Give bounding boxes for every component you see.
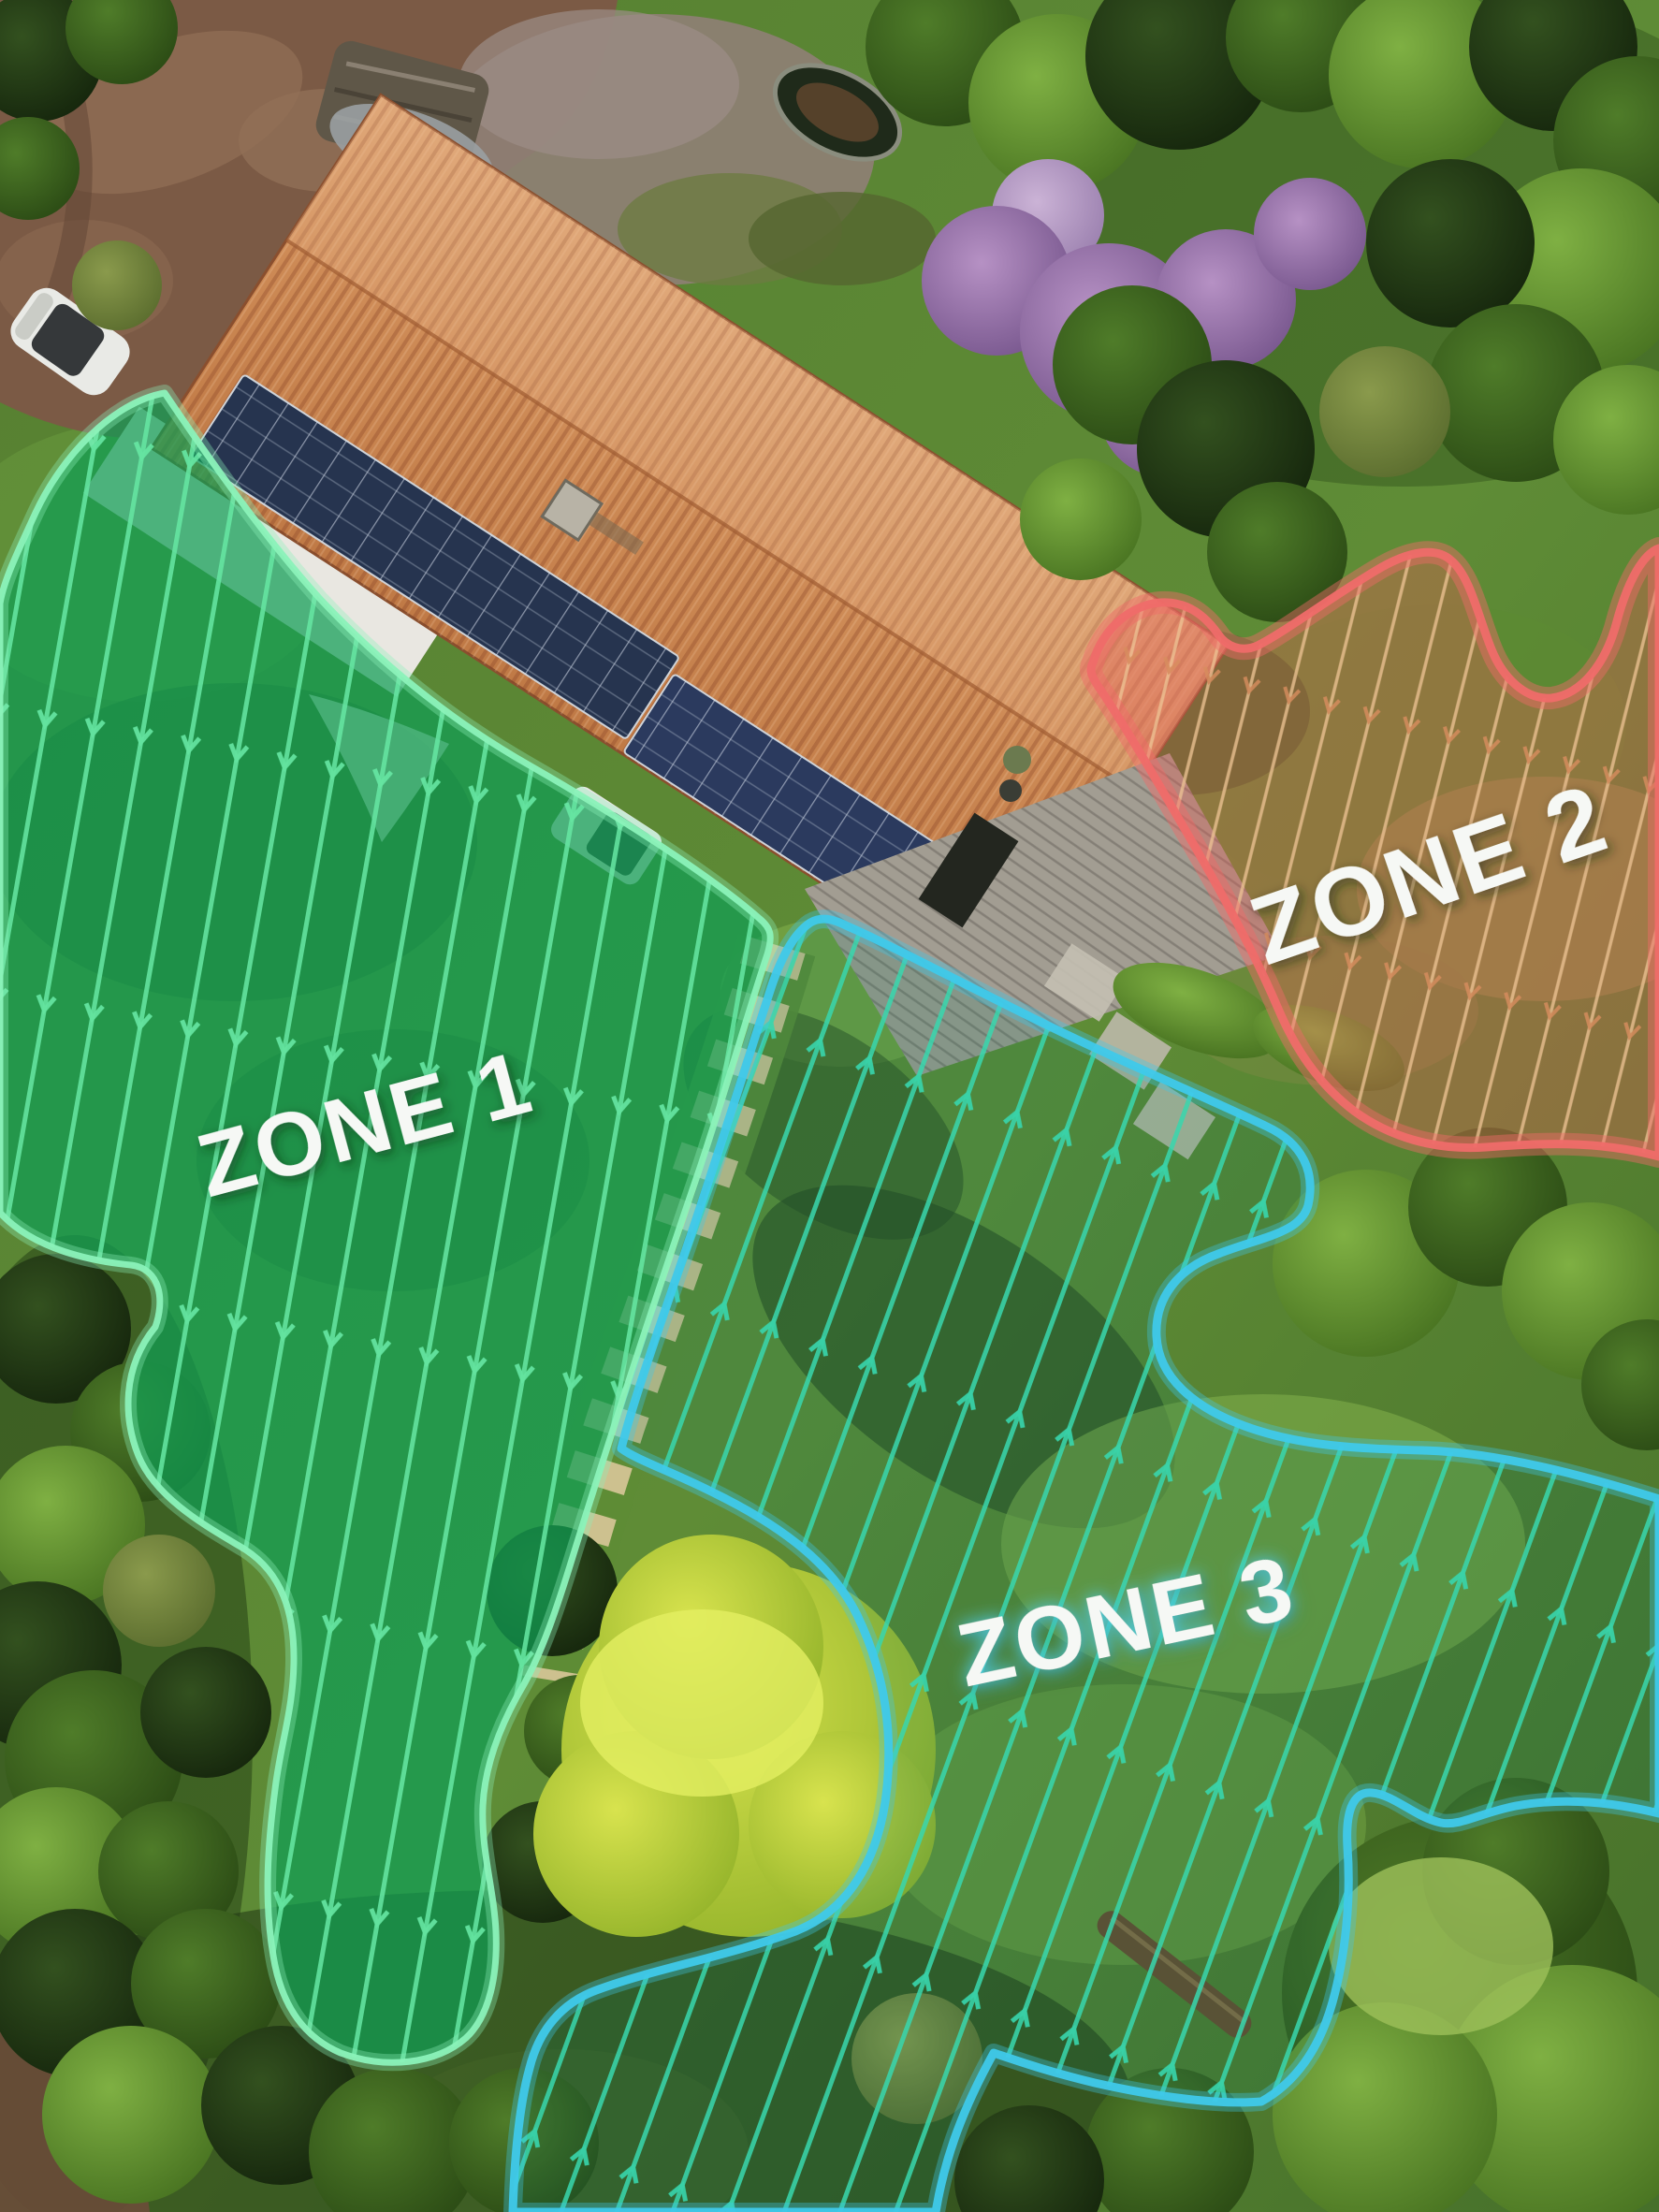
aerial-garden-photo: ZONE 1 ZONE 2 ZONE 3	[0, 0, 1659, 2212]
terrace-furniture	[999, 779, 1022, 802]
patio-plant	[1003, 746, 1031, 774]
